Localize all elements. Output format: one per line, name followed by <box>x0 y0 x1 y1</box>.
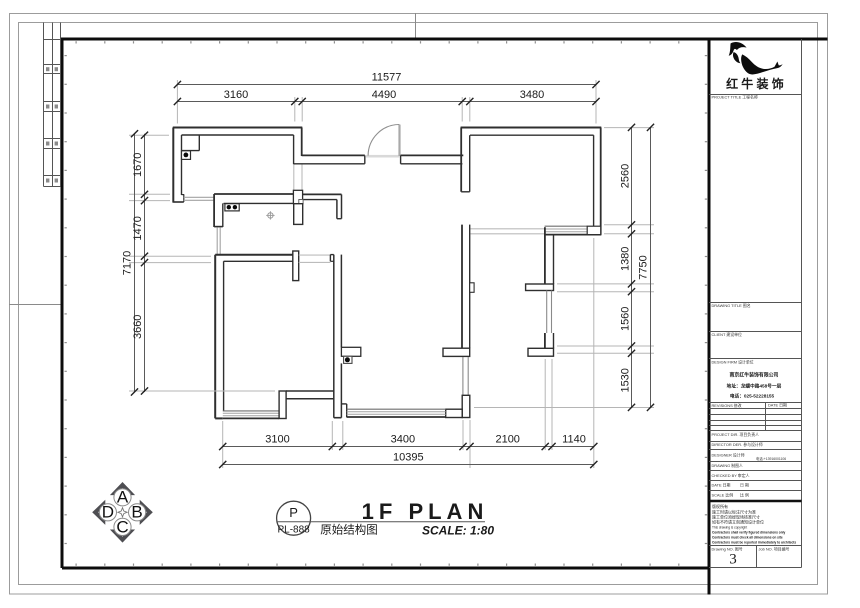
svg-text:PROJECT DIR. 项目负责人: PROJECT DIR. 项目负责人 <box>712 432 760 437</box>
svg-text:DATE 日期: DATE 日期 <box>768 403 787 408</box>
svg-text:D: D <box>102 503 114 522</box>
svg-text:1670: 1670 <box>132 153 144 177</box>
svg-text:南京红牛装饰有限公司: 南京红牛装饰有限公司 <box>730 372 779 379</box>
svg-text:Contractors must check all dim: Contractors must check all dimensions on… <box>712 536 783 540</box>
svg-text:Drawing NO. 图号: Drawing NO. 图号 <box>712 546 743 551</box>
svg-text:3: 3 <box>729 552 737 568</box>
svg-text:3100: 3100 <box>265 434 289 446</box>
svg-text:DRAWING TITLE 图名: DRAWING TITLE 图名 <box>712 303 751 308</box>
svg-text:1560: 1560 <box>619 307 631 331</box>
svg-text:DATE 日期: DATE 日期 <box>712 483 731 488</box>
svg-text:1530: 1530 <box>619 368 631 392</box>
svg-text:2560: 2560 <box>619 164 631 188</box>
svg-text:3400: 3400 <box>391 434 415 446</box>
svg-text:SCALE: 1:80: SCALE: 1:80 <box>422 524 494 538</box>
svg-text:地址：龙蟠中路458号一层: 地址：龙蟠中路458号一层 <box>727 383 782 390</box>
svg-text:Job NO. 项目编号: Job NO. 项目编号 <box>759 546 790 551</box>
svg-text:REVISIONS 修改: REVISIONS 修改 <box>712 403 742 408</box>
svg-text:1380: 1380 <box>619 247 631 271</box>
svg-text:11577: 11577 <box>372 72 402 84</box>
svg-text:1F PLAN: 1F PLAN <box>362 499 489 524</box>
svg-text:10395: 10395 <box>393 452 424 464</box>
svg-text:7750: 7750 <box>638 255 650 279</box>
svg-text:CHECKED BY 审定人: CHECKED BY 审定人 <box>712 473 750 478</box>
svg-text:7170: 7170 <box>122 251 134 275</box>
svg-text:电话:+13916001106: 电话:+13916001106 <box>756 456 786 461</box>
svg-text:4490: 4490 <box>372 89 396 101</box>
svg-text:P: P <box>289 505 298 520</box>
svg-text:B: B <box>131 503 142 522</box>
svg-text:PROJECT TITLE 工程名称: PROJECT TITLE 工程名称 <box>712 95 758 100</box>
svg-text:3660: 3660 <box>132 315 144 339</box>
svg-text:1140: 1140 <box>562 434 586 446</box>
svg-text:电话：025-52228155: 电话：025-52228155 <box>730 393 775 400</box>
svg-text:原始结构图: 原始结构图 <box>320 523 378 537</box>
svg-text:CLIENT 建设单位: CLIENT 建设单位 <box>712 332 743 337</box>
svg-text:1470: 1470 <box>132 216 144 240</box>
svg-text:SCALE 比例: SCALE 比例 <box>712 493 734 498</box>
svg-text:3160: 3160 <box>224 89 248 101</box>
svg-text:DRAWING 制图人: DRAWING 制图人 <box>712 463 744 468</box>
svg-text:红牛装饰: 红牛装饰 <box>726 76 787 91</box>
svg-text:C: C <box>116 518 128 537</box>
svg-text:2100: 2100 <box>495 434 519 446</box>
svg-text:3480: 3480 <box>520 89 544 101</box>
svg-text:A: A <box>117 488 129 507</box>
svg-text:如有不符请立刻通知设计单位: 如有不符请立刻通知设计单位 <box>712 518 764 524</box>
svg-text:DESIGN FIRM 设计单位: DESIGN FIRM 设计单位 <box>712 360 754 365</box>
svg-text:Contractors must be reported i: Contractors must be reported immediately… <box>712 541 796 545</box>
svg-text:PL-888: PL-888 <box>277 525 310 536</box>
svg-text:DIRECTOR DER. 参与设计师: DIRECTOR DER. 参与设计师 <box>712 442 763 447</box>
svg-text:日 期: 日 期 <box>740 482 749 487</box>
svg-text:Contractors shall verify figur: Contractors shall verify figured dimensi… <box>712 530 786 534</box>
svg-text:DESIGNER 设计师: DESIGNER 设计师 <box>712 453 745 458</box>
svg-text:This drawing is copyright: This drawing is copyright <box>712 525 747 529</box>
svg-text:比 例: 比 例 <box>740 492 749 497</box>
